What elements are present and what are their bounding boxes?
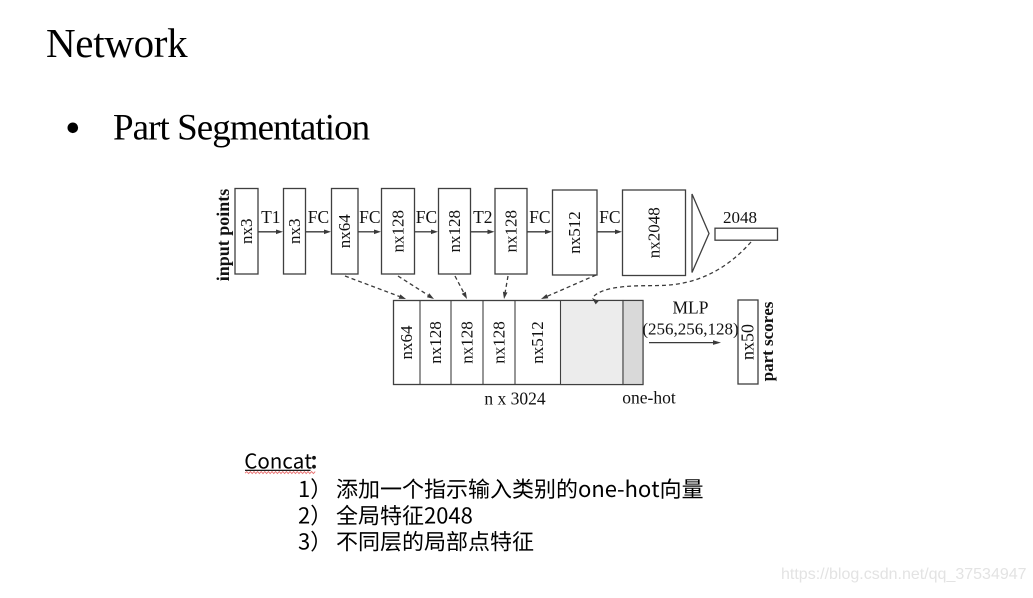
- svg-text:https://blog.csdn.net/qq_37534: https://blog.csdn.net/qq_37534947: [781, 566, 1027, 583]
- svg-text:nx128: nx128: [389, 210, 408, 253]
- svg-text:nx128: nx128: [458, 321, 477, 364]
- svg-text:(256,256,128): (256,256,128): [642, 320, 738, 339]
- svg-text:nx512: nx512: [528, 321, 547, 364]
- svg-text:part scores: part scores: [758, 301, 777, 381]
- svg-text:nx512: nx512: [565, 211, 584, 254]
- svg-text:FC: FC: [599, 207, 620, 227]
- svg-text:T2: T2: [473, 207, 492, 227]
- svg-text:MLP: MLP: [673, 298, 709, 318]
- svg-text:nx128: nx128: [502, 210, 521, 253]
- svg-text:nx2048: nx2048: [645, 207, 664, 258]
- svg-text:nx128: nx128: [426, 321, 445, 364]
- svg-text:2048: 2048: [723, 208, 757, 227]
- svg-text:nx50: nx50: [738, 324, 758, 360]
- svg-text:nx128: nx128: [445, 210, 464, 253]
- svg-text:nx3: nx3: [285, 218, 304, 244]
- svg-text:Network: Network: [46, 20, 188, 66]
- svg-text:Part Segmentation: Part Segmentation: [113, 108, 370, 149]
- svg-text:nx128: nx128: [490, 321, 509, 364]
- svg-text:nx64: nx64: [335, 214, 354, 249]
- svg-text:FC: FC: [416, 207, 437, 227]
- svg-text:FC: FC: [359, 207, 380, 227]
- svg-text:FC: FC: [529, 207, 550, 227]
- svg-text:input points: input points: [213, 189, 233, 282]
- svg-text:nx3: nx3: [237, 218, 256, 244]
- svg-text:one-hot: one-hot: [622, 388, 676, 408]
- svg-text:nx64: nx64: [397, 325, 416, 360]
- svg-text:n x 3024: n x 3024: [484, 389, 546, 409]
- svg-text:T1: T1: [261, 207, 280, 227]
- svg-text:FC: FC: [308, 207, 329, 227]
